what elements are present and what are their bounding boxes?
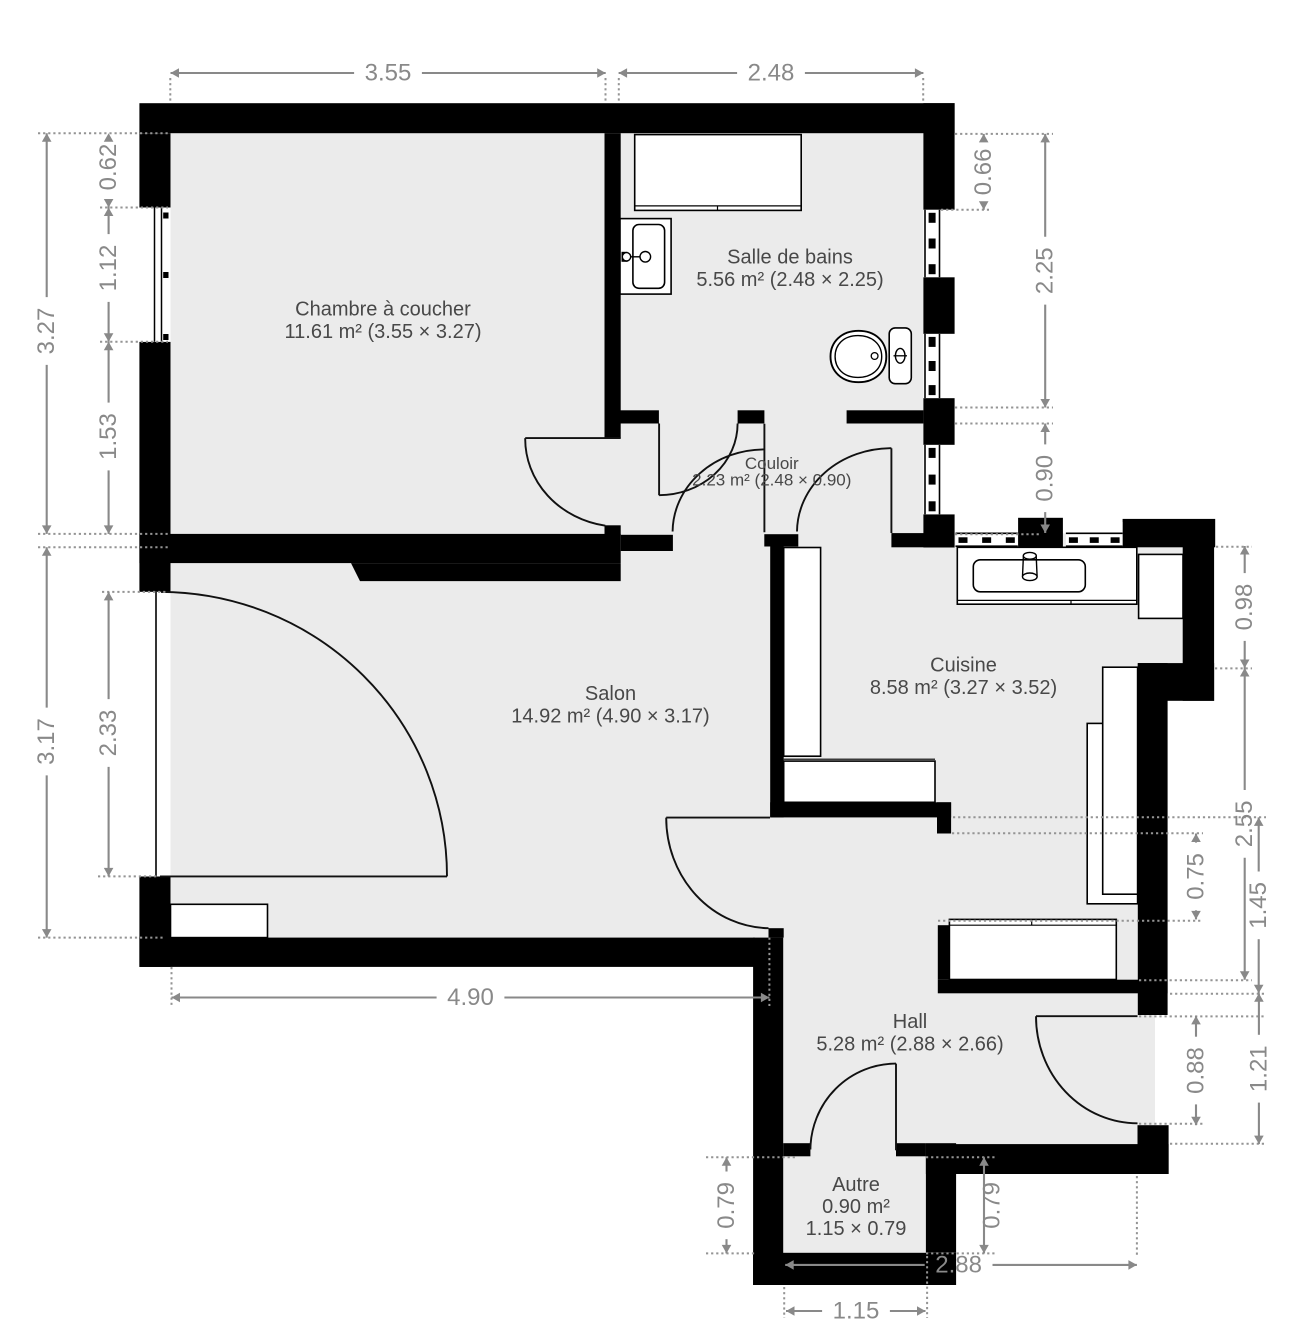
svg-text:2.33: 2.33 — [95, 710, 122, 757]
svg-text:11.61 m² (3.55 × 3.27): 11.61 m² (3.55 × 3.27) — [285, 321, 482, 343]
svg-text:Salle de bains: Salle de bains — [727, 246, 853, 268]
svg-text:0.79: 0.79 — [979, 1182, 1006, 1229]
svg-text:3.17: 3.17 — [33, 718, 60, 765]
svg-text:0.75: 0.75 — [1183, 853, 1210, 900]
svg-text:2.23 m² (2.48 × 0.90): 2.23 m² (2.48 × 0.90) — [692, 470, 851, 489]
svg-text:2.88: 2.88 — [935, 1251, 982, 1278]
svg-text:0.90 m²: 0.90 m² — [822, 1196, 890, 1218]
svg-text:0.98: 0.98 — [1231, 584, 1258, 631]
svg-text:1.45: 1.45 — [1245, 882, 1272, 929]
svg-text:0.62: 0.62 — [95, 144, 122, 191]
svg-text:14.92 m² (4.90 × 3.17): 14.92 m² (4.90 × 3.17) — [511, 706, 709, 728]
svg-text:5.56 m² (2.48 × 2.25): 5.56 m² (2.48 × 2.25) — [696, 269, 883, 291]
svg-text:0.66: 0.66 — [970, 148, 997, 195]
svg-text:Salon: Salon — [585, 683, 636, 705]
svg-text:Cuisine: Cuisine — [930, 655, 997, 677]
svg-text:3.55: 3.55 — [365, 60, 412, 87]
svg-text:0.88: 0.88 — [1183, 1047, 1210, 1094]
svg-text:1.15: 1.15 — [833, 1298, 880, 1325]
svg-text:0.79: 0.79 — [713, 1182, 740, 1229]
svg-text:3.27: 3.27 — [33, 308, 60, 355]
svg-text:0.90: 0.90 — [1032, 455, 1059, 502]
svg-text:Hall: Hall — [893, 1011, 927, 1033]
svg-text:5.28 m² (2.88 × 2.66): 5.28 m² (2.88 × 2.66) — [816, 1034, 1003, 1056]
svg-text:2.48: 2.48 — [748, 60, 795, 87]
svg-text:1.53: 1.53 — [95, 413, 122, 460]
svg-text:Chambre à coucher: Chambre à coucher — [295, 299, 471, 321]
svg-text:8.58 m² (3.27 × 3.52): 8.58 m² (3.27 × 3.52) — [870, 677, 1057, 699]
svg-text:1.15 × 0.79: 1.15 × 0.79 — [806, 1218, 907, 1240]
svg-text:1.21: 1.21 — [1245, 1045, 1272, 1092]
svg-text:1.12: 1.12 — [95, 245, 122, 292]
svg-text:2.25: 2.25 — [1032, 247, 1059, 294]
svg-text:4.90: 4.90 — [447, 984, 494, 1011]
svg-text:Autre: Autre — [832, 1174, 880, 1196]
svg-text:2.55: 2.55 — [1231, 800, 1258, 847]
